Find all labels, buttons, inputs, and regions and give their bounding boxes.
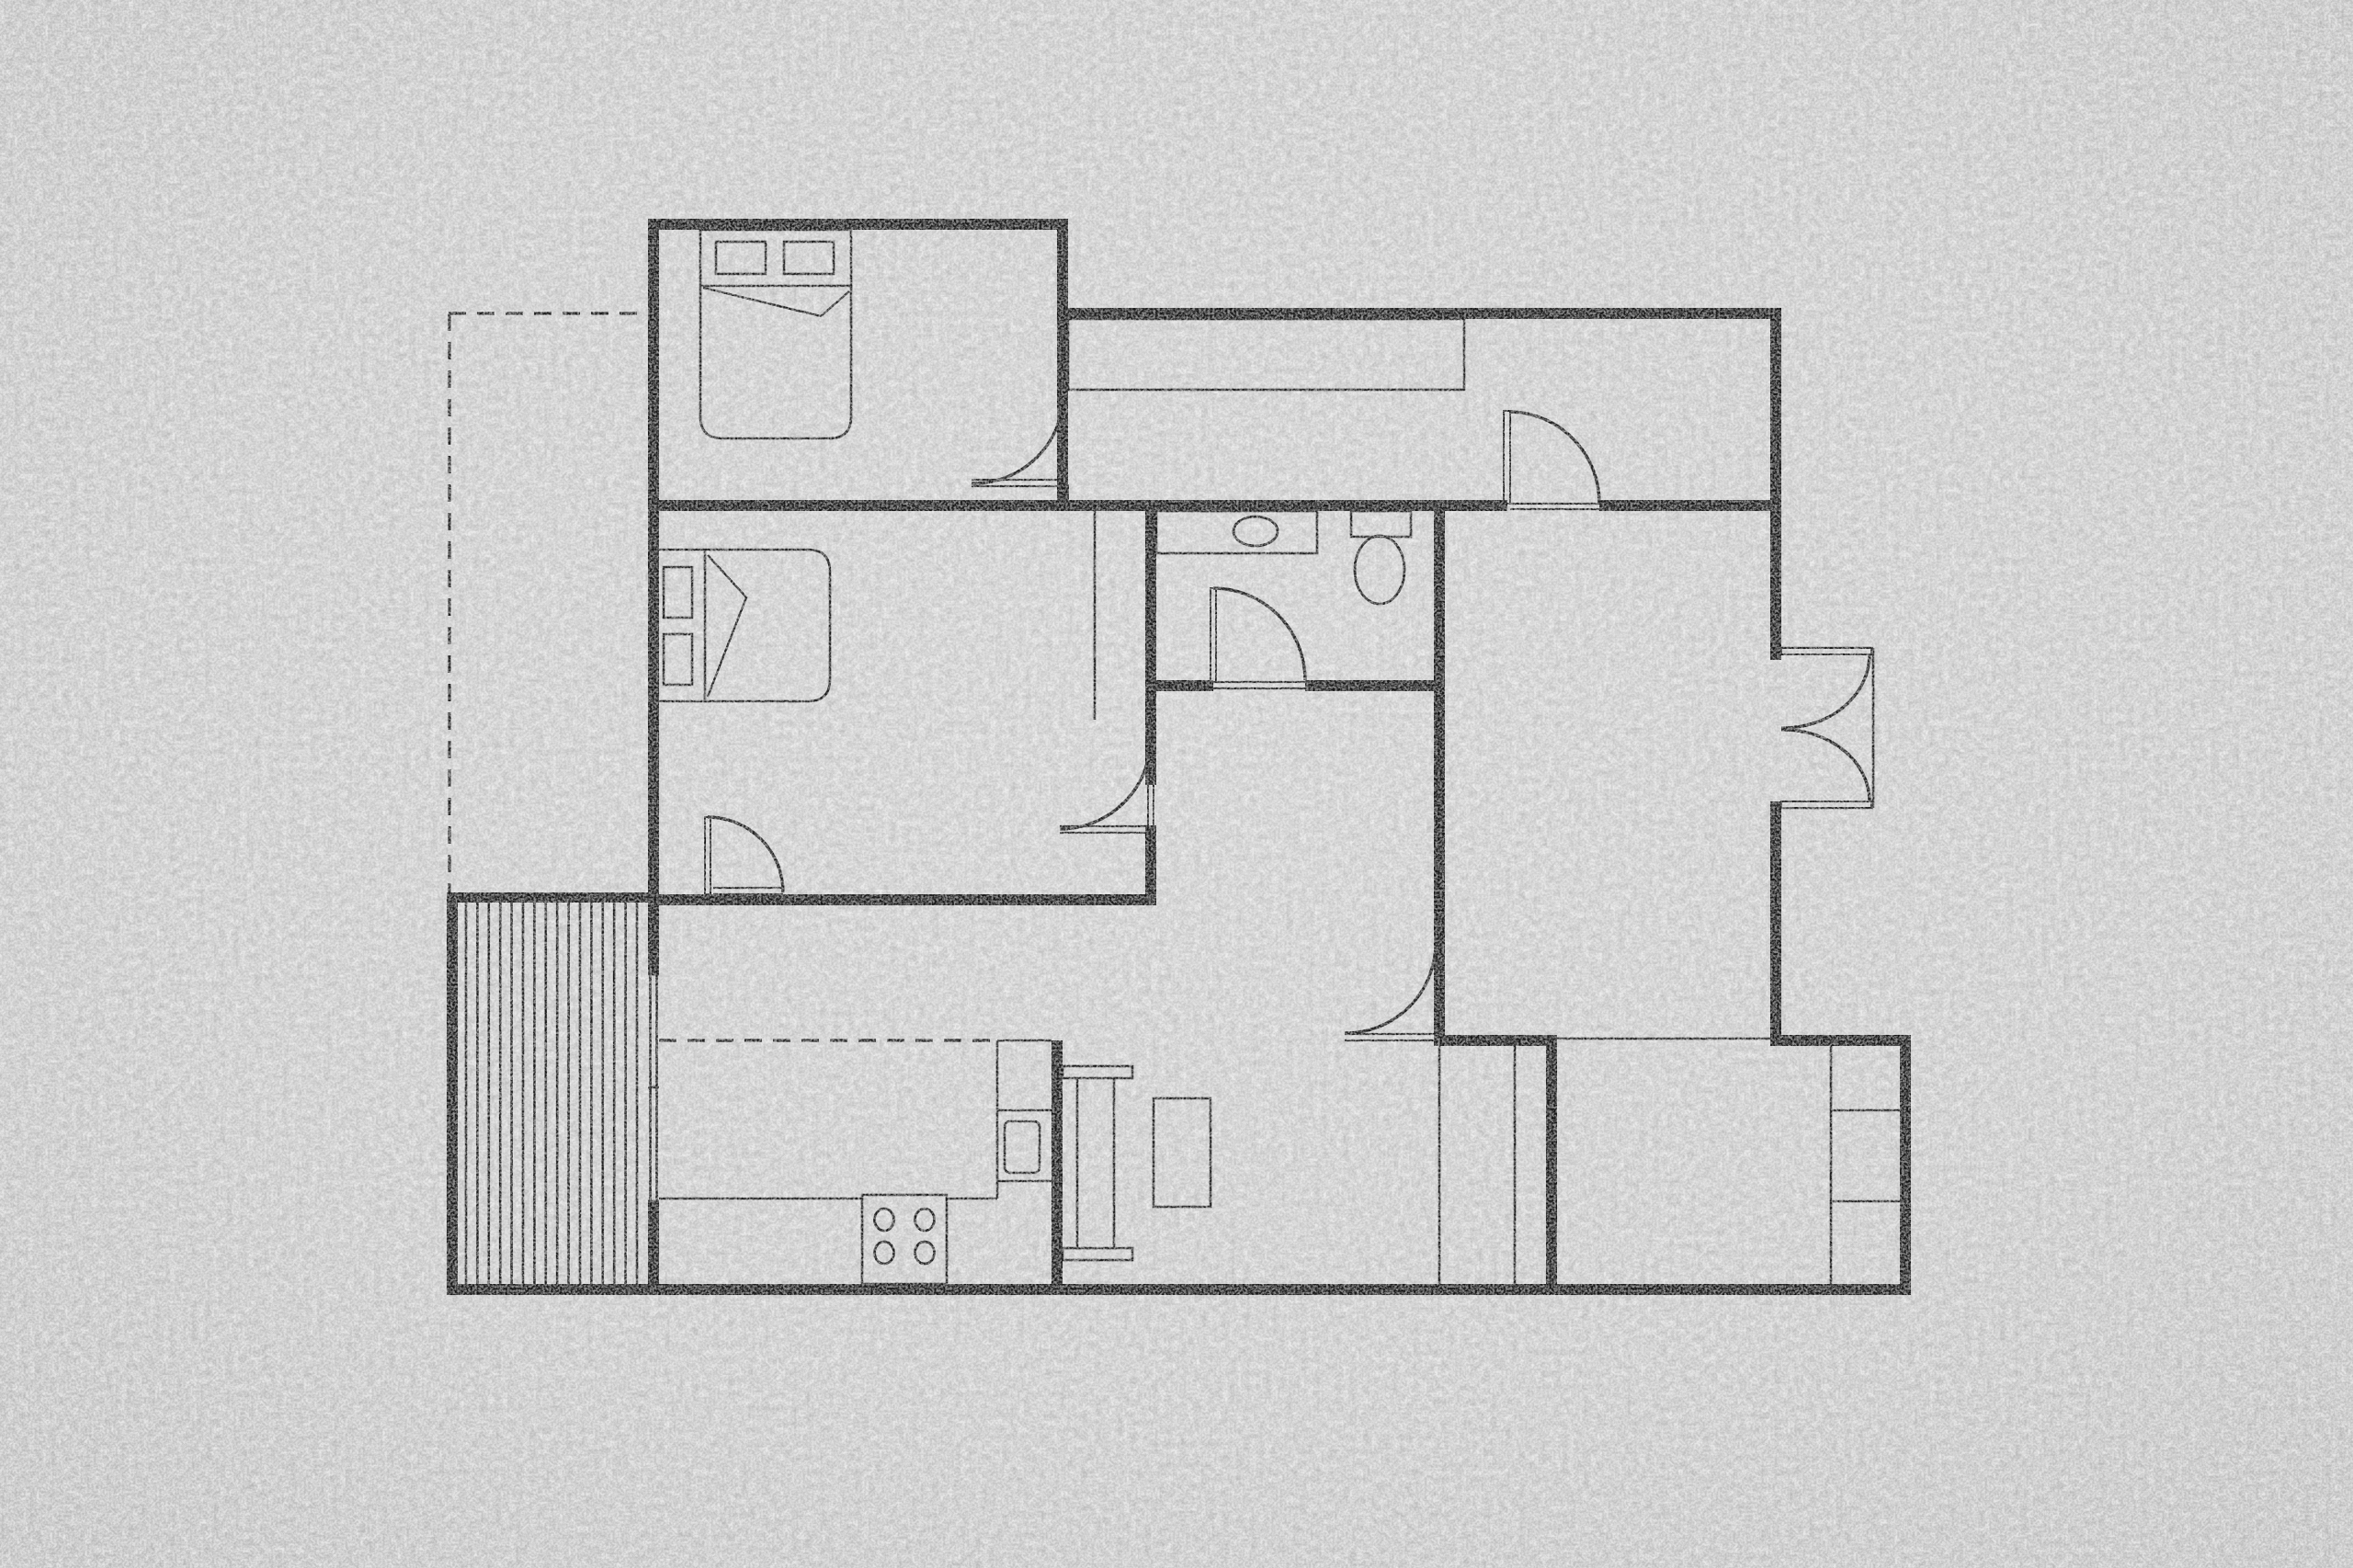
floor-plan-stage (0, 0, 2353, 1568)
floor-plan-svg (0, 0, 2353, 1568)
concrete-texture-dark (0, 0, 2353, 1568)
